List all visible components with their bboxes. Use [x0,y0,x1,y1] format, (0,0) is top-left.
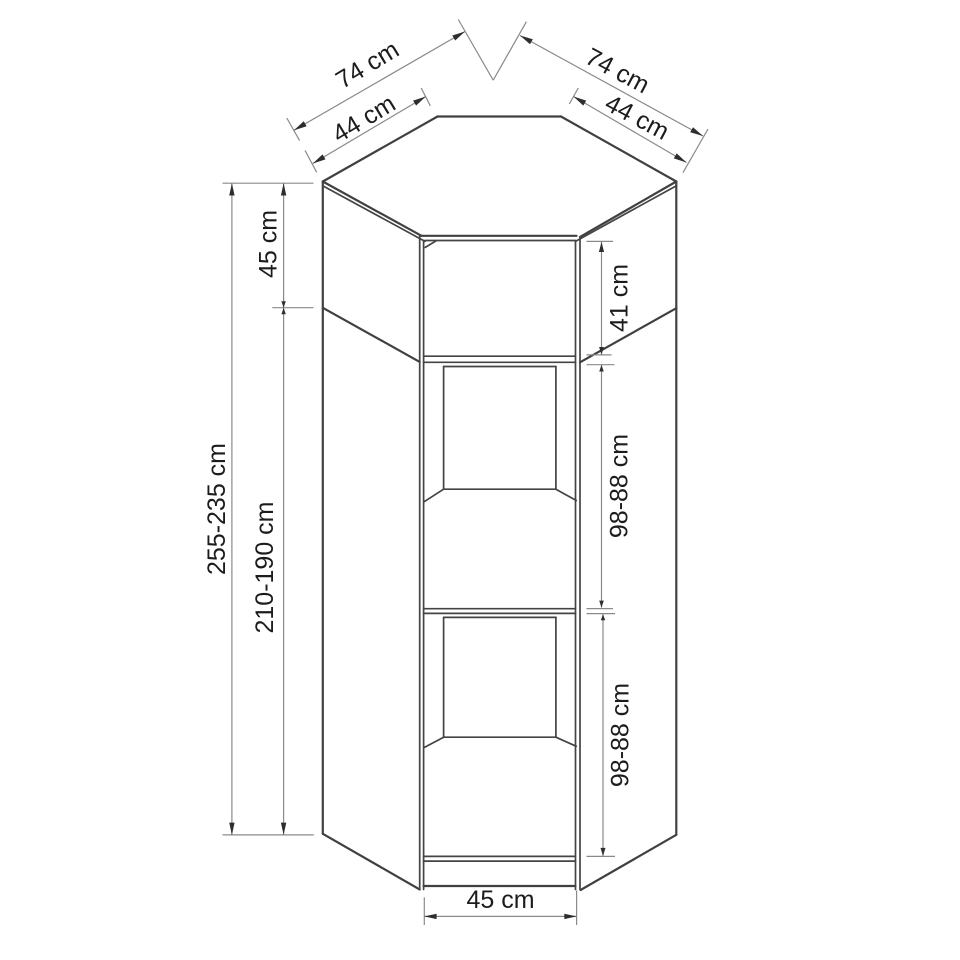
svg-text:41 cm: 41 cm [606,264,634,332]
svg-text:74 cm: 74 cm [331,35,404,94]
svg-text:98-88 cm: 98-88 cm [607,683,635,787]
svg-text:210-190 cm: 210-190 cm [251,501,279,633]
svg-text:45 cm: 45 cm [255,210,283,278]
svg-text:44 cm: 44 cm [328,89,401,148]
svg-text:255-235 cm: 255-235 cm [203,443,231,575]
svg-text:98-88 cm: 98-88 cm [606,434,634,538]
svg-text:45 cm: 45 cm [466,886,534,914]
svg-text:44 cm: 44 cm [600,89,673,146]
